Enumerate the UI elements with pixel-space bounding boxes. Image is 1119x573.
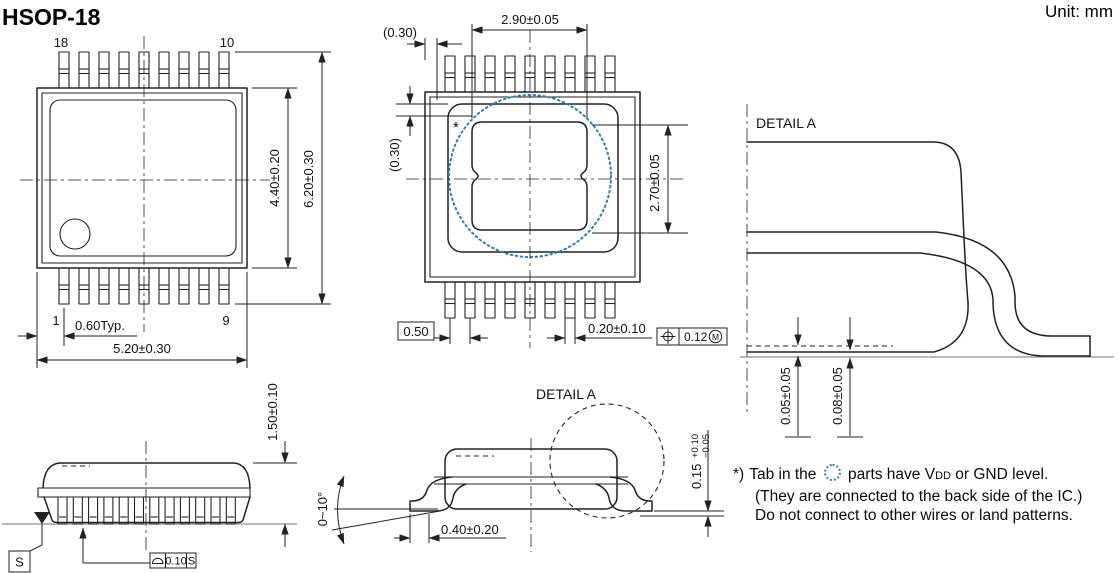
dim-height: 1.50±0.10 xyxy=(265,383,280,441)
position-tolerance-frame: 0.12 M xyxy=(657,328,727,345)
front-view: 1.50±0.10 S 0.10 S xyxy=(2,383,297,572)
pin-number-9: 9 xyxy=(222,313,229,328)
dim-lead-offset: 0.60Typ. xyxy=(75,318,125,333)
dim-lead-width: 0.20±0.10 xyxy=(588,321,646,336)
lead-shoulder-band xyxy=(38,488,250,497)
note-line-1: *)Tab in the parts have VDD or GND level… xyxy=(733,464,1117,487)
datum-feature: S xyxy=(9,512,50,572)
note-line-3: Do not connect to other wires or land pa… xyxy=(733,506,1117,526)
top-view: 18 10 1 9 0.60Typ. 5.20±0.30 4.40±0.20 6… xyxy=(18,35,331,368)
dim-standoff: 0.05±0.05 xyxy=(778,367,793,425)
dim-overall-depth: 6.20±0.30 xyxy=(301,150,316,208)
dim-foot-length: 0.40±0.20 xyxy=(441,522,499,537)
dim-pad-width: 2.90±0.05 xyxy=(501,12,559,27)
side-view: DETAIL A 0~10° 0.40±0.20 0.15 +0.10 −0.0… xyxy=(315,386,724,552)
lead-outer-profile xyxy=(936,232,1090,336)
dim-overall-width: 5.20±0.30 xyxy=(113,341,171,356)
bottom-view: * 2.90±0.05 (0.30) (0.30) 2.70±0.05 xyxy=(383,12,727,348)
pin xyxy=(59,52,69,88)
dim-lead-angle: 0~10° xyxy=(315,492,330,526)
lead-right xyxy=(596,477,652,511)
note-line-2: (They are connected to the back side of … xyxy=(733,487,1117,507)
note-prefix: *) xyxy=(733,466,744,483)
dim-edge-clearance-v: (0.30) xyxy=(387,138,402,172)
dim-pad-standoff: 0.08±0.05 xyxy=(830,367,845,425)
pin-number-18: 18 xyxy=(54,35,68,50)
datum-triangle-icon xyxy=(34,512,50,524)
lead xyxy=(58,497,67,524)
dim-pad-height: 2.70±0.05 xyxy=(647,154,662,212)
body-outline xyxy=(37,88,247,268)
seating-tolerance-frame: 0.10 S xyxy=(83,528,196,568)
asterisk-mark: * xyxy=(453,119,459,136)
exposed-pad xyxy=(472,122,587,230)
tab-note: *)Tab in the parts have VDD or GND level… xyxy=(733,464,1117,526)
dim-body-depth: 4.40±0.20 xyxy=(267,149,282,207)
dim-lead-thickness-group: 0.15 +0.10 −0.05 xyxy=(689,434,712,489)
lead-left xyxy=(410,477,466,511)
position-tolerance-value: 0.12 xyxy=(684,330,708,344)
mmc-modifier-icon: M xyxy=(709,330,721,342)
detail-a-title: DETAIL A xyxy=(756,115,817,131)
dim-tol-minus: −0.05 xyxy=(701,434,712,458)
datum-label: S xyxy=(15,555,24,570)
tab-region-icon xyxy=(824,464,841,481)
pin1-indicator xyxy=(60,219,90,249)
svg-text:M: M xyxy=(712,332,719,342)
dim-lead-pitch: 0.50 xyxy=(403,324,428,339)
flatness-tolerance-value: 0.10 xyxy=(165,556,186,568)
pin-number-1: 1 xyxy=(52,313,59,328)
position-symbol-icon xyxy=(661,329,676,344)
body-top-profile xyxy=(43,463,250,488)
dim-tol-plus: +0.10 xyxy=(690,434,701,458)
detail-a-callout: DETAIL A xyxy=(536,386,597,402)
body-profile xyxy=(747,142,968,352)
pin-number-10: 10 xyxy=(220,35,234,50)
pin xyxy=(445,282,455,318)
package-drawing-page: HSOP-18 Unit: mm 18 10 1 9 xyxy=(0,0,1119,573)
body-bottom-profile xyxy=(44,497,250,523)
vdd-subscript: DD xyxy=(935,470,951,482)
detail-a-view: 0.05±0.05 0.08±0.05 DETAIL A xyxy=(740,104,1114,437)
dim-edge-clearance-h: (0.30) xyxy=(383,25,417,40)
lead-inner-profile xyxy=(920,253,1090,356)
seating-plane-symbol-icon xyxy=(153,558,164,563)
pin xyxy=(445,56,455,92)
dim-lead-thickness: 0.15 xyxy=(689,464,704,489)
pin xyxy=(59,268,69,304)
flatness-datum-ref: S xyxy=(188,556,195,568)
